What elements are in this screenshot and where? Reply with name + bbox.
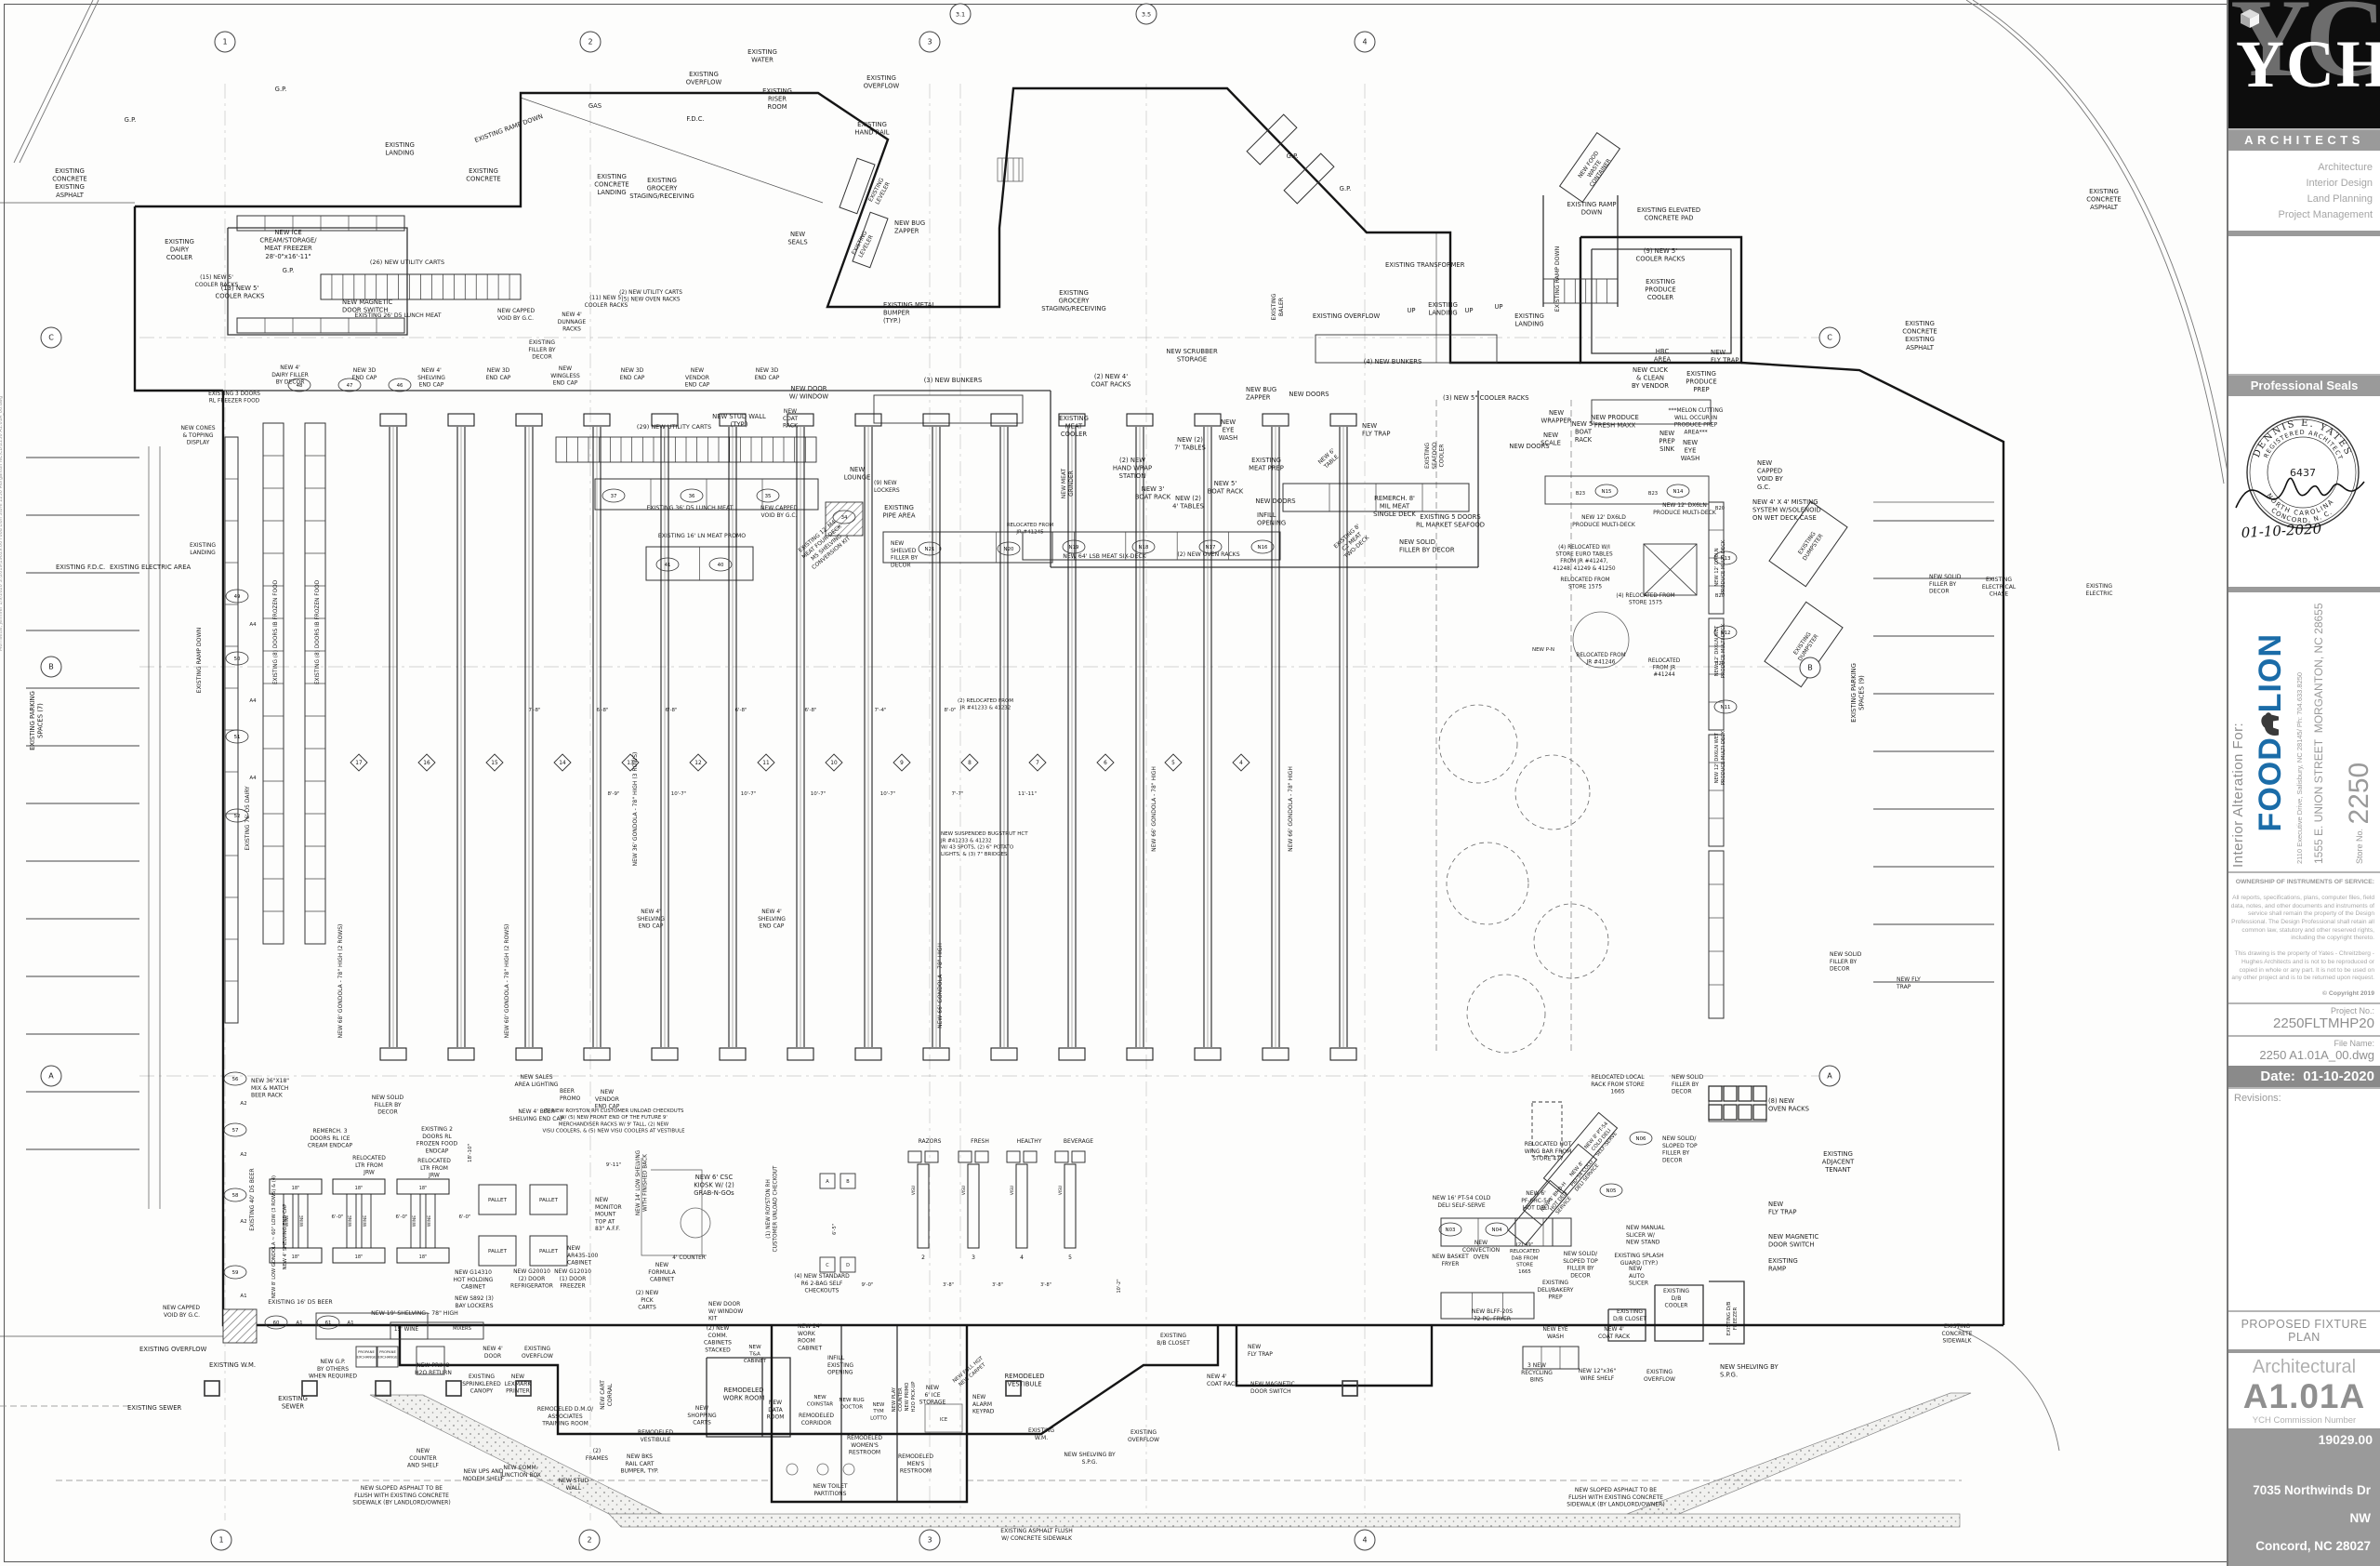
end-cap bbox=[1195, 1048, 1221, 1060]
plan-label: NEW 12' DX6LN WETPRODUCE MULTI-DECK bbox=[1714, 623, 1726, 678]
svg-text:59: 59 bbox=[232, 1270, 239, 1276]
plan-label: BEVERAGE bbox=[1064, 1138, 1093, 1145]
plan-label: A1 bbox=[347, 1320, 353, 1326]
svg-text:18": 18" bbox=[419, 1254, 428, 1260]
plan-label: 3'-8" bbox=[992, 1282, 1003, 1288]
plan-label: 8'-9" bbox=[607, 791, 619, 797]
file-name-field: File Name: 2250 A1.01A_00.dwg bbox=[2228, 1035, 2380, 1066]
plan-label: NEW FULL HGTNEW CARPET bbox=[952, 1355, 989, 1389]
end-cap bbox=[1195, 414, 1221, 426]
plan-label: REMODELEDMEN'SRESTROOM bbox=[898, 1453, 933, 1475]
plan-label: NEWSEALS bbox=[787, 231, 807, 246]
svg-text:2: 2 bbox=[921, 1254, 925, 1261]
plan-label: A4 bbox=[249, 776, 257, 781]
plan-label: NEW CARTCORRAL bbox=[600, 1380, 614, 1410]
plan-label: NEW PRODUCEFRESH MAXX bbox=[1591, 414, 1639, 430]
plan-label: PROPANEEXCHANGE bbox=[356, 1349, 377, 1360]
plan-label: REMODELED D.M.O/ASSOCIATESTRAINING ROOM bbox=[537, 1406, 594, 1427]
plan-label: NEWFLY TRAP bbox=[1711, 349, 1739, 365]
fixture bbox=[223, 1309, 257, 1343]
plan-label: NEW 66' GONDOLA - 78" HIGH bbox=[937, 943, 944, 1029]
svg-text:N06: N06 bbox=[1636, 1136, 1646, 1142]
plan-label: NEW UPS ANDMODEM SHELF bbox=[463, 1468, 505, 1482]
plan-label: RAZORS bbox=[919, 1138, 942, 1145]
svg-text:N04: N04 bbox=[1492, 1228, 1502, 1233]
professional-seal: DENNIS E. YATES REGISTERED ARCHITECT NOR… bbox=[2228, 396, 2380, 587]
plan-label: NEW 5'BOATRACK bbox=[1572, 420, 1595, 444]
cube-icon bbox=[2238, 7, 2262, 30]
plan-label: NEW DOORW/ WINDOWKIT bbox=[708, 1301, 743, 1322]
plan-label: NEW G20010(2) DOORREFRIGERATOR bbox=[510, 1268, 553, 1290]
plan-label: (9) NEWLOCKERS bbox=[874, 480, 900, 494]
plan-label: EXISTINGBALER bbox=[1271, 293, 1285, 320]
plan-label: NEW SALESAREA LIGHTING bbox=[515, 1074, 559, 1088]
plan-label: UP bbox=[1407, 307, 1415, 314]
plan-label: (2) RELOCATED FROMJR #41233 & 41232 bbox=[958, 698, 1013, 710]
plan-label: 10'-7" bbox=[741, 791, 757, 797]
plan-label: EXISTING (8) DOORS IB FROZEN FOOD bbox=[273, 579, 279, 684]
end-cap bbox=[787, 1048, 813, 1060]
plan-label: EXISTING W.M. bbox=[209, 1361, 256, 1369]
plan-label: 7'-7" bbox=[951, 791, 963, 797]
project-number-field: Project No.: 2250FLTMHP20 bbox=[2228, 1002, 2380, 1035]
plan-label: EXISTINGPIPE AREA bbox=[883, 504, 916, 520]
plan-label: EXISTINGSEAFOODCOOLER bbox=[1424, 442, 1446, 470]
plan-label: EXISTING TRANSFORMER bbox=[1385, 261, 1465, 269]
end-cap bbox=[1263, 1048, 1289, 1060]
svg-text:16: 16 bbox=[423, 761, 430, 766]
plan-label: EXISTING SPLASHGUARD (TYP.) bbox=[1614, 1253, 1663, 1267]
plan-label: G.P. bbox=[1340, 185, 1352, 192]
svg-text:10: 10 bbox=[830, 761, 838, 766]
plan-label: REMODELEDWORK ROOM bbox=[723, 1387, 765, 1402]
end-cap bbox=[1263, 414, 1289, 426]
plan-label: NEW 6'PF-6HC-54HOT DELI bbox=[1521, 1190, 1551, 1212]
svg-text:WINE: WINE bbox=[427, 1215, 432, 1227]
project-for-label: Interior Alteration For: bbox=[2230, 598, 2246, 868]
svg-text:WINE: WINE bbox=[412, 1215, 417, 1227]
plan-label: 3 NEWRECYCLINGBINS bbox=[1521, 1362, 1553, 1384]
svg-text:C: C bbox=[1827, 334, 1832, 342]
plan-label: NEW6' ICESTORAGE bbox=[919, 1385, 946, 1406]
service-item: Land Planning bbox=[2228, 192, 2373, 207]
plan-label: NEW 3DEND CAP bbox=[620, 367, 645, 381]
plan-label: NEW SOLID/SLOPED TOPFILLER BYDECOR bbox=[1563, 1251, 1598, 1279]
plan-label: EXISTINGOVERFLOW bbox=[864, 74, 900, 90]
seal-signature bbox=[2236, 478, 2364, 508]
svg-text:5: 5 bbox=[1068, 1254, 1072, 1261]
plan-label: NEW CAPPEDVOID BY G.C. bbox=[163, 1305, 200, 1319]
end-cap bbox=[1127, 414, 1153, 426]
svg-text:6: 6 bbox=[1104, 761, 1107, 766]
svg-text:WINE: WINE bbox=[348, 1215, 353, 1227]
svg-text:36: 36 bbox=[689, 494, 695, 499]
plan-label: NEWVENDOREND CAP bbox=[595, 1089, 620, 1110]
plan-label: (2) NEW OVEN RACKS bbox=[1177, 551, 1239, 558]
svg-text:A: A bbox=[48, 1072, 54, 1081]
plan-label: EXISTING ELEVATEDCONCRETE PAD bbox=[1637, 206, 1700, 222]
plan-label: MIXERS bbox=[453, 1326, 471, 1332]
plan-label: NEW G14310HOT HOLDINGCABINET bbox=[454, 1269, 494, 1291]
plan-label: 9'-11" bbox=[606, 1162, 622, 1168]
plan-label: NEWAR435-100CABINET bbox=[567, 1245, 599, 1267]
round-fixture bbox=[681, 1208, 710, 1238]
date-field: Date: 01-10-2020 bbox=[2228, 1066, 2380, 1087]
svg-text:3.1: 3.1 bbox=[956, 11, 965, 19]
client-address: 2110 Executive Drive, Salisbury, NC 2814… bbox=[2295, 600, 2304, 864]
plan-label: NEW RUGDOCTOR bbox=[839, 1398, 864, 1410]
end-cap bbox=[1127, 1048, 1153, 1060]
plan-label: G.P. bbox=[1287, 153, 1299, 160]
plan-label: EXISTING 16' D5 BEER bbox=[268, 1299, 333, 1306]
plan-label: NEW SOLID/SLOPED TOPFILLER BYDECOR bbox=[1662, 1135, 1698, 1163]
plan-label: 6'-8" bbox=[734, 708, 747, 713]
plan-label: 4' COUNTER bbox=[672, 1255, 706, 1261]
plan-label: EXISTINGRISERROOM bbox=[762, 87, 792, 111]
plan-label: G.P. bbox=[125, 116, 137, 124]
plan-label: NEW 4'DOOR bbox=[483, 1346, 503, 1360]
checkout-lane bbox=[968, 1164, 979, 1248]
svg-text:57: 57 bbox=[232, 1128, 239, 1134]
plan-label: EXISTINGCONCRETE bbox=[466, 167, 500, 183]
plan-label: NEWT&ACABINET bbox=[744, 1345, 767, 1364]
svg-text:N21: N21 bbox=[925, 547, 935, 552]
sheet-number: A1.01A bbox=[2228, 1378, 2380, 1415]
svg-text:9: 9 bbox=[900, 761, 904, 766]
svg-text:35: 35 bbox=[765, 494, 772, 499]
plan-label: NEW SLOPED ASPHALT TO BEFLUSH WITH EXIST… bbox=[1567, 1487, 1664, 1508]
plan-label: 6'-0" bbox=[395, 1214, 407, 1220]
gp-box bbox=[302, 1381, 317, 1396]
svg-text:PALLET: PALLET bbox=[539, 1198, 559, 1203]
plan-label: NEW 3DEND CAP bbox=[755, 367, 780, 381]
plan-label: (3) NEW 5" COOLER RACKS bbox=[1443, 394, 1529, 402]
svg-text:N03: N03 bbox=[1446, 1228, 1456, 1233]
plan-label: 6'-0" bbox=[458, 1214, 470, 1220]
plan-label: NEW S892 (3)BAY LOCKERS bbox=[455, 1295, 494, 1309]
end-cap bbox=[380, 414, 406, 426]
plan-label: NEW MANUALSLICER W/NEW STAND bbox=[1626, 1225, 1665, 1246]
plan-label: REMODELEDVESTIBULE bbox=[638, 1429, 673, 1443]
svg-text:18": 18" bbox=[419, 1186, 428, 1191]
plan-label: NEW 4'COAT RACK bbox=[1207, 1374, 1239, 1387]
display-case bbox=[1709, 851, 1724, 1018]
svg-text:PALLET: PALLET bbox=[488, 1198, 508, 1203]
plan-label: NEW 66' GONDOLA - 78" HIGH bbox=[1151, 766, 1157, 852]
end-cap bbox=[923, 414, 949, 426]
plan-label: INFILLEXISTINGOPENING bbox=[827, 1355, 853, 1376]
plan-label: (2) NEW UTILITY CARTS(5) NEW OVEN RACKS bbox=[619, 290, 682, 303]
plan-label: EXISTING ELECTRIC AREA bbox=[110, 564, 192, 571]
end-cap bbox=[991, 414, 1017, 426]
plan-label: NEW DOORS bbox=[1289, 391, 1329, 398]
floor-plan-svg: WINEWINE18"18"WINEWINE18"18"WINEWINE18"1… bbox=[0, 0, 2231, 1566]
plan-label: EXISTINGLANDING bbox=[1428, 301, 1458, 317]
copyright: © Copyright 2019 bbox=[2322, 990, 2374, 997]
plan-label: RELOCATED LOCALRACK FROM STORE1665 bbox=[1591, 1074, 1645, 1095]
plan-label: NEWTYMLOTTO bbox=[870, 1402, 887, 1421]
svg-text:49: 49 bbox=[234, 594, 241, 600]
plan-label: NEWFLY TRAP bbox=[1768, 1201, 1796, 1216]
plan-label: GAS bbox=[588, 102, 602, 110]
svg-text:47: 47 bbox=[347, 383, 353, 389]
plan-label: NEW 66' GONDOLA - 78" HIGH bbox=[1288, 766, 1294, 852]
svg-text:18": 18" bbox=[355, 1186, 364, 1191]
svg-text:41: 41 bbox=[665, 563, 671, 568]
plan-label: EXISTINGSPRINKLEREDCANOPY bbox=[462, 1374, 501, 1395]
plan-label: (2) NEWPICKCARTS bbox=[636, 1290, 659, 1311]
plan-label: NEW SHELVING BYS.P.G. bbox=[1064, 1452, 1116, 1466]
plan-label: NEW 4'SHELVINGEND CAP bbox=[417, 367, 445, 389]
plan-label: NEWSCALE bbox=[1540, 431, 1561, 447]
plan-label: 6'-8" bbox=[596, 708, 608, 713]
plan-label: INFILLOPENING bbox=[1257, 511, 1286, 527]
plan-label: (4) RELOCATED FROMSTORE 1575 bbox=[1616, 593, 1674, 606]
plan-label: F.D.C. bbox=[686, 115, 704, 123]
round-fixture bbox=[817, 1464, 828, 1475]
plot-stamp: Morrisette, Jennifer 1/9/2020 S:\2019\19… bbox=[0, 396, 4, 651]
sidewalk-band bbox=[1627, 1393, 1971, 1514]
plan-label: 11'-11" bbox=[1018, 791, 1037, 797]
svg-text:B: B bbox=[48, 663, 54, 671]
checkout-lane bbox=[1016, 1164, 1027, 1248]
plan-label: NEWSHOPPINGCARTS bbox=[687, 1405, 717, 1427]
plan-label: 7'-4" bbox=[874, 708, 886, 713]
plan-label: NEW SUSPENDED BUGSTRUT HCTJR #41233 & 41… bbox=[940, 831, 1028, 857]
sidewalk-band bbox=[609, 1514, 1960, 1527]
plan-label: EXISTINGLANDING bbox=[190, 542, 216, 556]
plan-label: NEW 68' GONDOLA - 78" HIGH (2 ROWS) bbox=[337, 924, 344, 1039]
plan-label: EXISTING 40' D5 BEER bbox=[249, 1168, 256, 1230]
end-cap bbox=[652, 1048, 678, 1060]
plan-label: (4) NEW STANDARDR6 2-BAG SELFCHECKOUTS bbox=[794, 1273, 850, 1294]
plan-label: ***MELON CUTTINGWILL OCCUR INPRODUCE PRE… bbox=[1669, 407, 1724, 435]
services-list: ArchitectureInterior DesignLand Planning… bbox=[2228, 151, 2380, 231]
plan-label: NEW SOLIDFILLER BYDECOR bbox=[1672, 1074, 1704, 1095]
plan-label: NEW CAPPEDVOID BY G.C. bbox=[760, 505, 798, 519]
plan-label: NEW 8'PID-54 COLDDELI SERVICE bbox=[1564, 1154, 1601, 1193]
svg-text:14: 14 bbox=[559, 761, 566, 766]
plan-label: (2) NEW 4'COAT RACKS bbox=[1091, 373, 1131, 389]
plan-label: (8) NEWOVEN RACKS bbox=[1768, 1097, 1809, 1113]
plan-label: EXISTING PARKINGSPACES (7) bbox=[29, 691, 45, 750]
file-name-value: 2250 A1.01A_00.dwg bbox=[2234, 1048, 2374, 1062]
plan-label: EXISTINGWATER bbox=[747, 48, 777, 64]
plan-label: (2)FRAMES bbox=[586, 1448, 608, 1462]
svg-text:VISU: VISU bbox=[961, 1186, 967, 1195]
plan-label: NEW MAGNETICDOOR SWITCH bbox=[1250, 1381, 1295, 1395]
svg-text:18": 18" bbox=[292, 1254, 300, 1260]
plan-label: NEW PRIMOH2O PICK-UP bbox=[905, 1382, 917, 1413]
plan-label: EXISTINGLANDING bbox=[385, 141, 415, 157]
plan-label: RELOCATED FROMSTORE 1575 bbox=[1560, 577, 1609, 591]
plan-label: EXISTING 5 DOORSRL MARKET SEAFOOD bbox=[1416, 513, 1485, 529]
plan-label: (2) NEWCOMM.CABINETSSTACKED bbox=[704, 1325, 732, 1353]
plan-label: 6'-0" bbox=[331, 1214, 343, 1220]
plan-label: NEWCOUNTERAND SHELF bbox=[407, 1448, 440, 1469]
plan-label: NEW P-N bbox=[1532, 647, 1554, 653]
plan-label: NEW 3DEND CAP bbox=[486, 367, 511, 381]
svg-text:8: 8 bbox=[968, 761, 972, 766]
plan-label: REMERCH. 3DOORS RL ICECREAM ENDCAP bbox=[308, 1128, 353, 1149]
plan-label: 9'-0" bbox=[861, 1282, 873, 1288]
plan-label: NEW BASKETFRYER bbox=[1432, 1254, 1469, 1267]
plan-label: A4 bbox=[249, 622, 257, 628]
svg-text:C: C bbox=[48, 334, 54, 342]
date-value: 01-10-2020 bbox=[2303, 1068, 2374, 1084]
plan-label: RELOCATEDFROM JR#41244 bbox=[1648, 658, 1681, 678]
end-cap bbox=[516, 1048, 542, 1060]
svg-text:56: 56 bbox=[232, 1077, 239, 1082]
plan-label: NEW 12"x36"WIRE SHELF bbox=[1579, 1368, 1617, 1382]
plan-label: NEW MAGNETICDOOR SWITCH bbox=[1768, 1233, 1818, 1249]
svg-text:4: 4 bbox=[1362, 38, 1367, 46]
end-cap bbox=[1059, 1048, 1085, 1060]
end-cap bbox=[855, 414, 881, 426]
plan-label: REMODELEDWOMEN'SRESTROOM bbox=[847, 1435, 882, 1456]
plan-label: EXISTING 36' D5 LUNCH MEAT bbox=[646, 505, 733, 511]
plan-label: NEW CLICK& CLEANBY VENDOR bbox=[1632, 366, 1669, 390]
plan-label: A1 bbox=[296, 1320, 302, 1326]
svg-text:WINE: WINE bbox=[363, 1215, 368, 1227]
plan-label: EXISTINGDAIRYCOOLER bbox=[165, 238, 194, 261]
plan-label: EXISTINGDELI/BAKERYPREP bbox=[1538, 1280, 1574, 1301]
plan-label: REMODELEDVESTIBULE bbox=[1004, 1373, 1044, 1388]
service-item: Interior Design bbox=[2228, 176, 2373, 192]
commission-label: YCH Commission Number bbox=[2228, 1415, 2380, 1428]
plan-label: EXISTINGFILLER BYDECOR bbox=[528, 339, 556, 361]
svg-text:3: 3 bbox=[927, 38, 932, 46]
plan-label: B23 bbox=[1576, 491, 1585, 497]
plan-label: NEW SOLIDFILLER BYDECOR bbox=[1929, 574, 1962, 595]
plan-label: NEWSHELVEDFILLER BYDECOR bbox=[891, 540, 919, 568]
plan-label: (2) 49"RELOCATEDDAB FROMSTORE1665 bbox=[1510, 1242, 1540, 1275]
plan-label: EXISTINGSEWER bbox=[278, 1395, 308, 1411]
svg-text:VISU: VISU bbox=[1010, 1186, 1015, 1195]
plan-label: NEW BLFF-20S72 PC. FRYER bbox=[1472, 1308, 1513, 1322]
svg-text:58: 58 bbox=[232, 1193, 239, 1199]
plan-label: EXISTING RAMP DOWN bbox=[1554, 246, 1561, 312]
plan-label: NEW COMM.JUNCTION BOX bbox=[499, 1465, 541, 1479]
plan-label: EXISTINGMEATCOOLER bbox=[1059, 415, 1089, 438]
plan-label: NEWPREPSINK bbox=[1659, 430, 1674, 453]
plan-label: NEW 3'BOAT RACK bbox=[1135, 485, 1171, 501]
svg-text:52: 52 bbox=[234, 814, 241, 819]
plan-label: EXISTINGPRODUCECOOLER bbox=[1645, 278, 1675, 301]
svg-text:N15: N15 bbox=[1602, 489, 1612, 495]
svg-text:A: A bbox=[1827, 1072, 1832, 1081]
plan-label: NEW SOLIDFILLER BYDECOR bbox=[1830, 951, 1862, 973]
plan-label: NEW 36' GONDOLA - 78" HIGH (3 ROWS) bbox=[632, 752, 639, 867]
plan-label: 3'-8" bbox=[943, 1282, 954, 1288]
plan-label: A2 bbox=[240, 1152, 246, 1158]
plan-label: NEWALARMKEYPAD bbox=[972, 1394, 995, 1415]
plan-label: EXISTINGD/B CLOSET bbox=[1613, 1308, 1646, 1322]
svg-text:5: 5 bbox=[1171, 761, 1175, 766]
rotated-fixture bbox=[840, 158, 875, 213]
plan-label: EXISTINGLANDING bbox=[1514, 312, 1544, 328]
end-cap bbox=[1330, 414, 1356, 426]
plan-label: B20 bbox=[1715, 593, 1725, 599]
plan-label: NEW BUGZAPPER bbox=[894, 219, 925, 235]
plan-label: NEWLOUNGE bbox=[844, 466, 871, 482]
plan-label: EXISTINGADJACENTTENANT bbox=[1822, 1150, 1855, 1174]
plan-label: NEW 4'DUNNAGERACKS bbox=[558, 312, 587, 333]
plan-label: EXISTING RAMP DOWN bbox=[474, 113, 545, 144]
plan-label: EXISTINGB/B CLOSET bbox=[1157, 1333, 1190, 1347]
plan-label: NEW ICECREAM/STORAGE/MEAT FREEZER28'-0"x… bbox=[259, 229, 317, 260]
plan-label: NEWDATAROOM bbox=[767, 1400, 785, 1421]
svg-text:3.5: 3.5 bbox=[1142, 11, 1151, 19]
plan-label: NEW BUGZAPPER bbox=[1246, 386, 1276, 402]
round-fixture bbox=[787, 1464, 798, 1475]
plan-label: 10'-7" bbox=[880, 791, 896, 797]
plan-label: 15' WINE bbox=[394, 1327, 419, 1333]
plan-label: EXISTINGOVERFLOW bbox=[1128, 1429, 1159, 1443]
plan-label: EXISTING RAMPDOWN bbox=[1567, 201, 1617, 217]
svg-text:N05: N05 bbox=[1606, 1188, 1617, 1194]
end-cap bbox=[380, 1048, 406, 1060]
svg-text:4: 4 bbox=[1239, 761, 1243, 766]
plan-label: NEWVENDOREND CAP bbox=[685, 367, 710, 389]
svg-text:50: 50 bbox=[234, 657, 241, 662]
plan-label: G.P. bbox=[283, 267, 295, 274]
plan-label: EXISTING (8) DOORS IB FROZEN FOOD bbox=[315, 579, 321, 684]
plan-label: 6'-8" bbox=[804, 708, 816, 713]
plan-label: NEWMONITORMOUNTTOP AT83" A.F.F. bbox=[594, 1197, 622, 1232]
plan-label: NEW SOLIDFILLER BYDECOR bbox=[372, 1095, 404, 1116]
plan-label: NEW 6' CSCKIOSK W/ (2)GRAB-N-GOs bbox=[694, 1174, 734, 1197]
firm-sub-band: ARCHITECTS bbox=[2228, 130, 2380, 151]
project-number-value: 2250FLTMHP20 bbox=[2234, 1015, 2374, 1031]
firm-logo-text: YCH bbox=[2236, 26, 2380, 103]
svg-text:PALLET: PALLET bbox=[539, 1249, 559, 1254]
plan-label: NEW 12' DX6LDPRODUCE MULTI-DECK bbox=[1572, 514, 1636, 528]
plan-label: 10'-7" bbox=[811, 791, 826, 797]
plan-label: EXISTINGELECTRICALCHASE bbox=[1982, 577, 2016, 598]
svg-text:N20: N20 bbox=[1004, 547, 1014, 552]
plan-label: EXISTING PARKINGSPACES (9) bbox=[1850, 663, 1866, 723]
ownership-statement: OWNERSHIP OF INSTRUMENTS OF SERVICE: All… bbox=[2228, 873, 2380, 1002]
plan-label: EXISTING 26' D5 LUNCH MEAT bbox=[354, 312, 441, 319]
plan-label: NEWLEXMARKPRINTER bbox=[505, 1374, 533, 1395]
plan-label: NEWWRAPPER bbox=[1540, 409, 1571, 425]
plan-label: (29) NEW UTILITY CARTS bbox=[637, 423, 711, 431]
plan-label: NEW 4'DAIRY FILLERBY DECOR bbox=[271, 365, 309, 386]
plan-label: NEW G.P.BY OTHERSWHEN REQUIRED bbox=[309, 1359, 357, 1380]
plan-label: EXISTING 16' LN MEAT PROMO bbox=[658, 533, 746, 539]
plan-label: EXISTINGHAND RAIL bbox=[854, 121, 889, 137]
commission-number: 19029.00 bbox=[2228, 1428, 2380, 1451]
plan-label: NEW SLOPED ASPHALT TO BEFLUSH WITH EXIST… bbox=[352, 1485, 450, 1506]
plan-label: NEW G12010(1) DOORFREEZER bbox=[554, 1268, 591, 1290]
plan-label: NEW SHELVING BYS.P.G. bbox=[1720, 1363, 1778, 1379]
round-fixture bbox=[1515, 755, 1590, 829]
round-fixture bbox=[1467, 975, 1545, 1053]
svg-text:4: 4 bbox=[1362, 1536, 1367, 1545]
plan-label: NEW 4' SHELVING END CAP bbox=[283, 1204, 288, 1270]
round-fixture bbox=[1447, 843, 1528, 924]
svg-text:WINE: WINE bbox=[299, 1215, 305, 1227]
svg-text:15: 15 bbox=[491, 761, 498, 766]
svg-text:51: 51 bbox=[234, 735, 241, 740]
plan-label: NEWEYEWASH bbox=[1681, 439, 1699, 462]
plan-label: NEW CAPPEDVOID BY G.C. bbox=[497, 308, 535, 322]
plan-label: NEWCAPPEDVOID BYG.C. bbox=[1757, 459, 1784, 491]
plan-label: 7'-8" bbox=[528, 708, 540, 713]
plan-label: EXISTINGRAMP bbox=[1768, 1257, 1798, 1273]
plan-label: B23 bbox=[1648, 491, 1658, 497]
